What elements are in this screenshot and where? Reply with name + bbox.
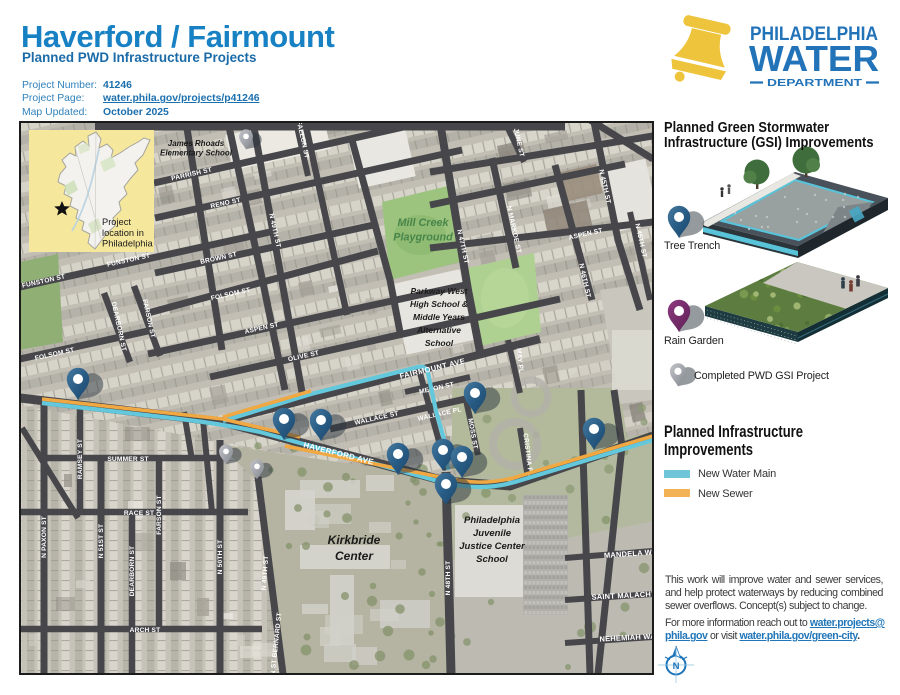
svg-text:Parkway West: Parkway West [410, 286, 468, 296]
svg-text:Philadelphia: Philadelphia [464, 515, 520, 526]
svg-text:Alternative: Alternative [416, 325, 461, 335]
svg-text:N PAXON ST: N PAXON ST [41, 516, 48, 558]
svg-text:Kirkbride: Kirkbride [328, 533, 381, 547]
svg-text:Middle Years: Middle Years [413, 312, 465, 322]
svg-text:SUMMER ST: SUMMER ST [107, 456, 148, 463]
svg-text:Center: Center [335, 549, 374, 563]
svg-text:Project: Project [102, 217, 131, 227]
svg-text:Mill Creek: Mill Creek [397, 217, 449, 229]
svg-text:ARCH ST: ARCH ST [130, 627, 161, 634]
svg-text:N: N [673, 661, 680, 672]
svg-text:N 51ST ST: N 51ST ST [98, 524, 105, 558]
svg-text:DEARBORN ST: DEARBORN ST [129, 546, 136, 597]
svg-text:location in: location in [102, 228, 144, 238]
svg-text:Elementary School: Elementary School [160, 149, 233, 158]
svg-text:RAMSEY ST: RAMSEY ST [77, 439, 84, 479]
svg-text:WATER: WATER [749, 38, 879, 79]
svg-text:Playground: Playground [393, 232, 453, 244]
svg-text:Justice Center: Justice Center [459, 541, 526, 552]
svg-text:School: School [425, 338, 454, 348]
svg-text:Philadelphia: Philadelphia [102, 239, 153, 249]
svg-text:DEPARTMENT: DEPARTMENT [767, 78, 862, 89]
svg-text:RACE ST: RACE ST [124, 510, 154, 517]
svg-text:School: School [476, 554, 508, 565]
svg-text:High School &: High School & [410, 299, 468, 309]
svg-text:N 50TH ST: N 50TH ST [217, 540, 224, 575]
svg-text:Juvenile: Juvenile [473, 528, 512, 539]
svg-text:FARSON ST: FARSON ST [156, 495, 163, 535]
svg-text:N 48TH ST: N 48TH ST [445, 561, 452, 596]
svg-text:James Rhoads: James Rhoads [168, 139, 225, 148]
